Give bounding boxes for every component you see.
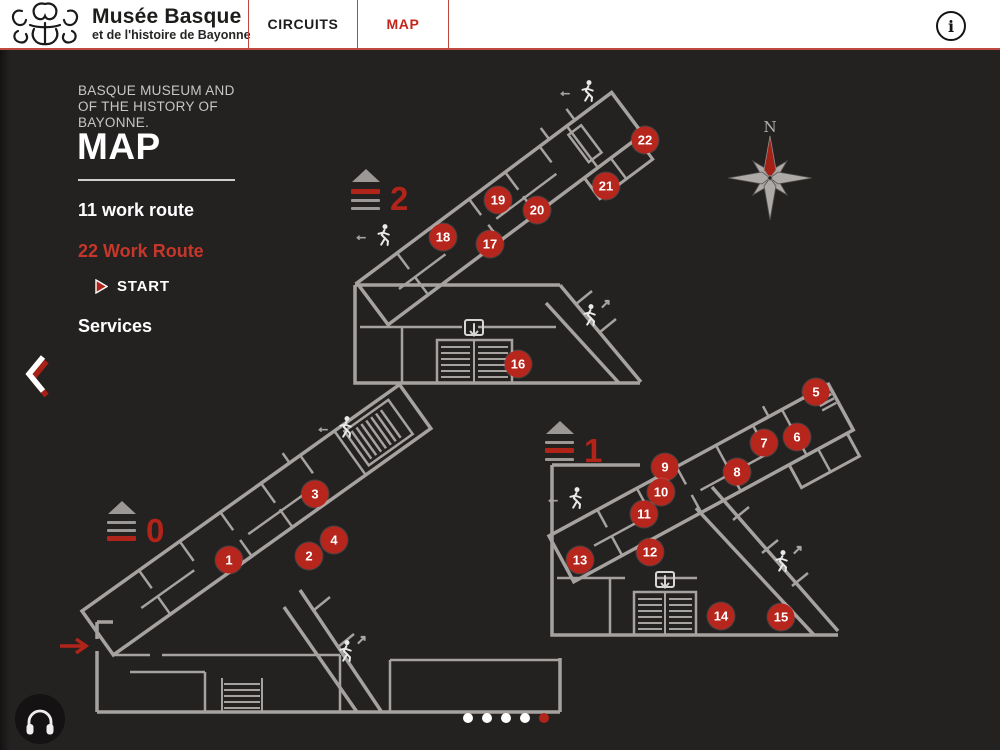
stairs-bar	[351, 199, 380, 202]
artwork-marker-11[interactable]: 11	[631, 501, 658, 528]
artwork-marker-9[interactable]: 9	[652, 454, 679, 481]
start-label: START	[117, 278, 170, 295]
audio-guide-button[interactable]	[15, 694, 65, 744]
floor-plan-level-1: ← ↗	[543, 374, 865, 635]
artwork-marker-10[interactable]: 10	[648, 479, 675, 506]
title-divider	[78, 179, 235, 181]
floor-level-number: 2	[390, 182, 408, 215]
compass-n-label: N	[763, 118, 776, 136]
pagination-dot-2[interactable]	[482, 713, 492, 723]
museum-subtitle: et de l'histoire de Bayonne	[92, 28, 251, 42]
pagination-dot-4[interactable]	[520, 713, 530, 723]
museum-emblem-icon	[8, 1, 82, 47]
route-22-link[interactable]: 22 Work Route	[78, 241, 204, 262]
svg-text:←: ←	[354, 227, 368, 243]
header-separator	[448, 0, 449, 48]
artwork-marker-19[interactable]: 19	[485, 187, 512, 214]
artwork-marker-8[interactable]: 8	[724, 459, 751, 486]
floor-level-icon-0: 0	[107, 501, 177, 561]
artwork-marker-22[interactable]: 22	[632, 127, 659, 154]
artwork-marker-12[interactable]: 12	[637, 539, 664, 566]
compass-rose-icon: N	[728, 118, 812, 220]
stairs-triangle-icon	[108, 501, 136, 514]
stairs-triangle-icon	[546, 421, 574, 434]
left-edge-shadow	[0, 50, 10, 750]
stairs-bar	[351, 189, 380, 194]
artwork-marker-13[interactable]: 13	[567, 547, 594, 574]
stairs-bar	[107, 536, 136, 541]
artwork-marker-4[interactable]: 4	[321, 527, 348, 554]
artwork-marker-2[interactable]: 2	[296, 543, 323, 570]
artwork-marker-15[interactable]: 15	[768, 604, 795, 631]
svg-text:↗: ↗	[600, 296, 611, 311]
stairs-bar	[545, 448, 574, 453]
tab-circuits[interactable]: CIRCUITS	[249, 0, 357, 48]
artwork-marker-18[interactable]: 18	[430, 224, 457, 251]
artwork-marker-1[interactable]: 1	[216, 547, 243, 574]
previous-page-button[interactable]	[24, 354, 54, 398]
floor-level-number: 1	[584, 434, 602, 467]
artwork-marker-3[interactable]: 3	[302, 481, 329, 508]
artwork-marker-20[interactable]: 20	[524, 197, 551, 224]
museum-map-app: Musée Basque et de l'histoire de Bayonne…	[0, 0, 1000, 750]
tab-map[interactable]: MAP	[358, 0, 448, 48]
artwork-marker-6[interactable]: 6	[784, 424, 811, 451]
museum-title: Musée Basque	[92, 6, 251, 28]
floor-level-icon-1: 1	[545, 421, 615, 481]
logo[interactable]: Musée Basque et de l'histoire de Bayonne	[8, 1, 251, 47]
route-11-link[interactable]: 11 work route	[78, 200, 194, 221]
play-icon	[95, 279, 108, 294]
svg-text:←: ←	[558, 83, 572, 99]
artwork-marker-14[interactable]: 14	[708, 603, 735, 630]
stairs-bar	[545, 441, 574, 444]
entrance-arrow-icon	[60, 639, 86, 653]
map-stage: ← ← ↗	[0, 50, 1000, 750]
stairs-bar	[107, 521, 136, 524]
floor-level-icon-2: 2	[351, 169, 421, 229]
svg-text:←: ←	[316, 419, 330, 435]
stairs-bar	[351, 207, 380, 210]
floor-level-number: 0	[146, 514, 164, 547]
artwork-marker-7[interactable]: 7	[751, 430, 778, 457]
pagination-dot-5[interactable]	[539, 713, 549, 723]
page-title: MAP	[77, 126, 161, 168]
artwork-marker-21[interactable]: 21	[593, 173, 620, 200]
start-button[interactable]: START	[95, 278, 170, 295]
headphones-icon	[23, 704, 57, 735]
services-link[interactable]: Services	[78, 316, 152, 337]
stairs-triangle-icon	[352, 169, 380, 182]
pagination-dot-1[interactable]	[463, 713, 473, 723]
svg-text:←: ←	[546, 490, 560, 506]
pagination	[458, 713, 553, 723]
chevron-left-icon	[24, 354, 54, 400]
museum-name-heading: BASQUE MUSEUM AND OF THE HISTORY OF BAYO…	[78, 83, 253, 132]
svg-text:↗: ↗	[792, 542, 803, 557]
stairs-bar	[545, 458, 574, 461]
info-icon[interactable]: i	[936, 11, 966, 41]
header: Musée Basque et de l'histoire de Bayonne…	[0, 0, 1000, 50]
floor-plan-level-2: ← ← ↗	[349, 80, 659, 383]
pagination-dot-3[interactable]	[501, 713, 511, 723]
artwork-marker-17[interactable]: 17	[477, 231, 504, 258]
artwork-marker-5[interactable]: 5	[803, 379, 830, 406]
stairs-bar	[107, 529, 136, 532]
svg-text:↗: ↗	[356, 632, 367, 647]
artwork-marker-16[interactable]: 16	[505, 351, 532, 378]
